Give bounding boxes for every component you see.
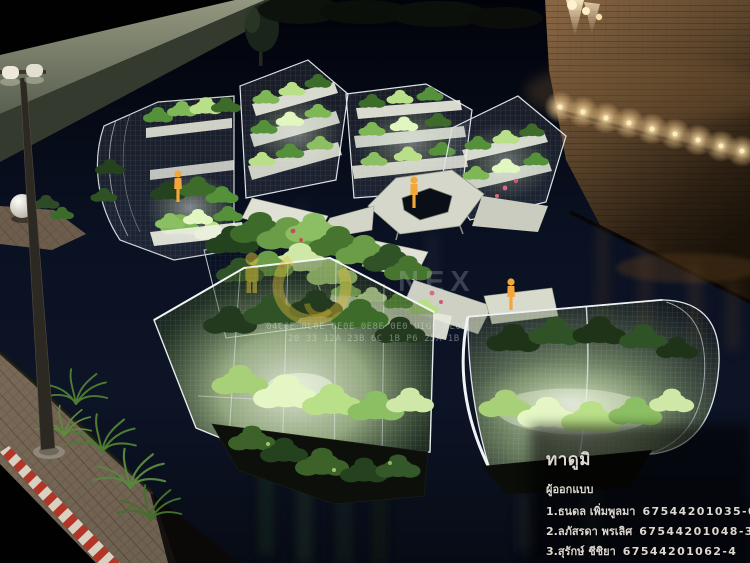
designer-name: 3.สุรักษ์ ชีชิยา [546,542,616,562]
designer-name: 2.ลภัสรดา พรเลิศ [546,522,632,542]
designer-student-id: 67544201048-3 [639,522,750,542]
lamp-head [26,64,43,77]
watermark-tiny-line1: 04C8E 0L0E 0E0E 0E8E 0E0 UIGE 0E0E [266,322,467,332]
designer-row: 1.ธนดล เพิ่มพูลมา 67544201035-0 [546,502,748,522]
lamp-head [2,66,19,79]
designer-student-id: 67544201035-0 [642,502,750,522]
architectural-night-render: NEX 04C8E 0L0E 0E0E 0E8E 0E0 UIGE 0E0E 2… [0,0,750,563]
greenhouse-top-middle [240,60,348,198]
watermark-tiny-line2: 20 33 12A 23B 6C 1B P6 25A 1B [288,334,460,344]
designer-row: 3.สุรักษ์ ชีชิยา 67544201062-4 [546,542,748,562]
designer-name: 1.ธนดล เพิ่มพูลมา [546,502,635,522]
project-title: ทาดูมิ [546,446,748,473]
designer-student-id: 67544201062-4 [623,542,738,562]
credits-block: ทาดูมิ ผู้ออกแบบ 1.ธนดล เพิ่มพูลมา 67544… [546,446,748,562]
watermark-brand-text: NEX [398,266,476,299]
designer-row: 2.ลภัสรดา พรเลิศ 67544201048-3 [546,522,748,542]
designer-heading: ผู้ออกแบบ [546,480,748,498]
